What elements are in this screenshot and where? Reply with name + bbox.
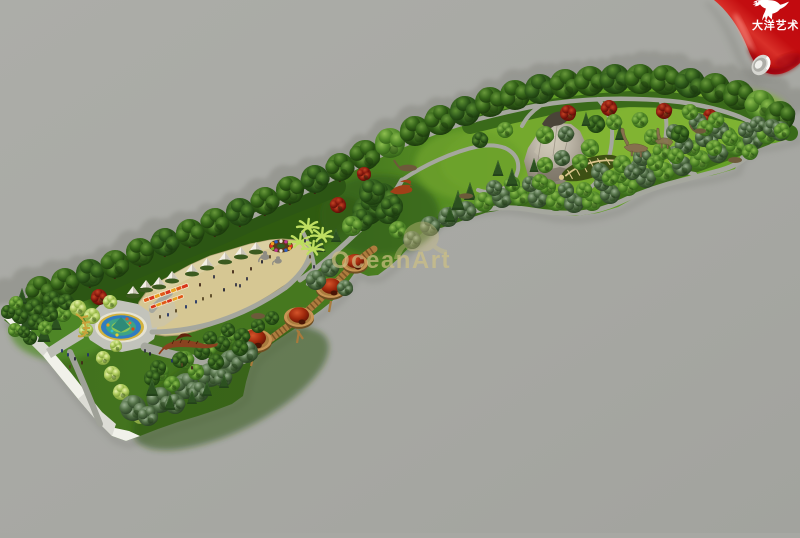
svg-text:大洋艺术: 大洋艺术 xyxy=(752,18,799,32)
svg-text:OceanArt: OceanArt xyxy=(331,247,451,274)
